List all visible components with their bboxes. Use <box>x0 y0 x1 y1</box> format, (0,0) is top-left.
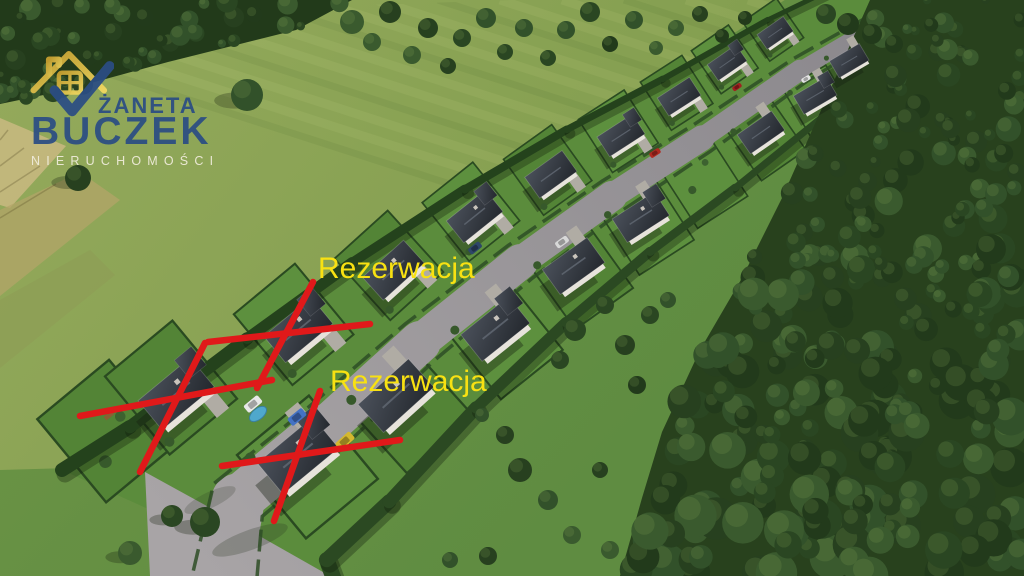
window-panes <box>59 73 81 93</box>
reservation-label: Rezerwacja <box>330 367 487 397</box>
aerial-estate-photo: Rezerwacja Rezerwacja ŻANETA BUCZEK NIER… <box>0 0 1024 576</box>
logo-subtitle: NIERUCHOMOŚCI <box>31 154 219 168</box>
logo-name-last: BUCZEK <box>31 110 212 154</box>
agency-logo: ŻANETA BUCZEK NIERUCHOMOŚCI <box>26 44 236 176</box>
reservation-label: Rezerwacja <box>318 254 475 284</box>
